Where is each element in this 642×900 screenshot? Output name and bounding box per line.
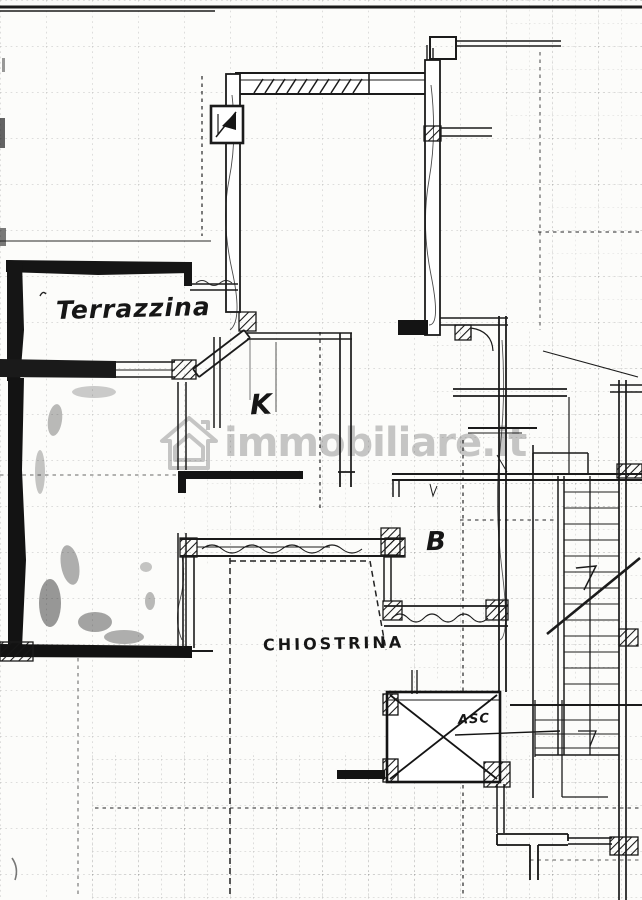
wall-hatch-block [180, 538, 197, 557]
wall-hatch-block [239, 312, 256, 331]
flue-box [211, 106, 243, 143]
wall-hatch-block [455, 325, 471, 340]
wall-hatch-block [617, 464, 642, 478]
wall-hatch-block [486, 600, 508, 620]
wall-hatch-block [383, 694, 398, 715]
wall-hatch-block [619, 629, 638, 646]
room-label-kitchen: K [249, 388, 272, 422]
room-label-bathroom: B [426, 527, 446, 557]
wall-hatch-block [383, 759, 398, 782]
wall-hatch-block [0, 642, 33, 661]
room-label-terrace: Terrazzina [56, 292, 211, 325]
floor-plan-scan: immobiliare.it [0, 0, 642, 900]
wall-hatch-block [424, 126, 441, 141]
wall-hatch-block [484, 762, 510, 787]
room-label-elevator: ASC [458, 711, 491, 728]
tile-grid [0, 0, 642, 900]
wall-hatch-block [385, 538, 405, 557]
room-label-lightwell: CHIOSTRINA [263, 633, 405, 655]
wall-hatch-block [610, 837, 638, 855]
